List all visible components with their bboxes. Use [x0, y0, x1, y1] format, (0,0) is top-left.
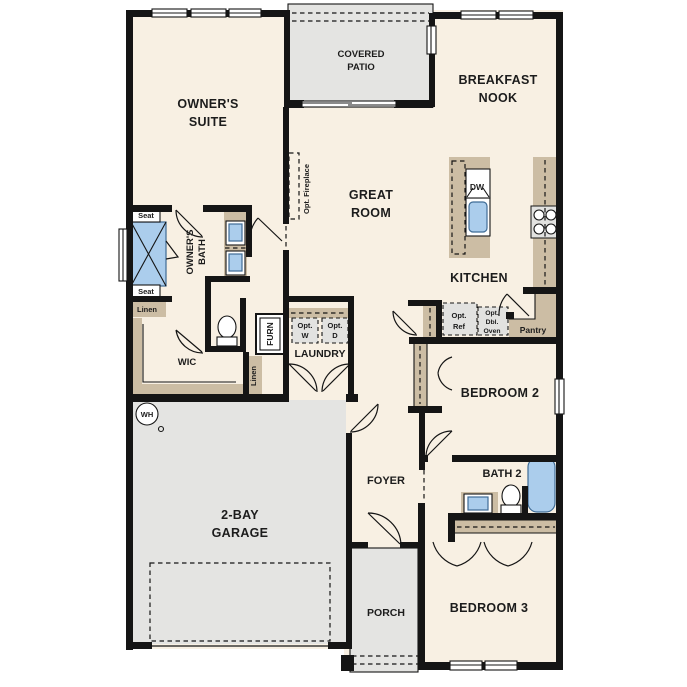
svg-text:ROOM: ROOM: [351, 206, 391, 220]
floor-plan: OWNER'S SUITE COVERED PATIO BREAKFAST NO…: [0, 0, 687, 687]
bath2-toilet: [502, 485, 520, 507]
label-great-room: GREAT: [349, 188, 393, 202]
window: [427, 26, 436, 54]
label-kitchen: KITCHEN: [450, 271, 508, 285]
svg-text:PATIO: PATIO: [347, 62, 375, 73]
label-opt-ref: Opt.: [452, 311, 467, 320]
garage-area: [132, 400, 346, 644]
window: [119, 229, 127, 281]
bath2-sink: [468, 497, 488, 510]
label-dishwasher: DW: [470, 182, 485, 192]
owners-sink-1: [229, 224, 242, 241]
label-pantry: Pantry: [520, 325, 547, 335]
window: [191, 9, 226, 17]
svg-text:Dbl.: Dbl.: [486, 319, 499, 326]
svg-text:Ref: Ref: [453, 322, 466, 331]
bath2-tub: [528, 458, 555, 512]
label-porch: PORCH: [367, 607, 405, 619]
label-linen-closet: Linen: [249, 366, 258, 386]
window: [461, 11, 496, 19]
label-covered-patio: COVERED: [338, 49, 385, 60]
window: [152, 9, 187, 17]
window: [485, 661, 517, 670]
window: [499, 11, 533, 19]
label-breakfast-nook: BREAKFAST: [458, 73, 537, 87]
owners-toilet: [218, 316, 236, 338]
svg-text:SUITE: SUITE: [189, 115, 227, 129]
owners-sink-2: [229, 254, 242, 271]
label-seat-bottom: Seat: [138, 287, 154, 296]
label-bedroom3: BEDROOM 3: [450, 601, 528, 615]
label-bedroom2: BEDROOM 2: [461, 386, 539, 400]
svg-text:D: D: [332, 331, 338, 340]
window: [450, 661, 482, 670]
label-foyer: FOYER: [367, 475, 405, 487]
label-wic: WIC: [178, 357, 197, 368]
label-opt-dryer: Opt.: [328, 321, 343, 330]
label-bath2: BATH 2: [483, 468, 522, 480]
label-laundry: LAUNDRY: [295, 348, 346, 360]
window: [229, 9, 261, 17]
svg-text:W: W: [301, 331, 309, 340]
label-opt-dbl-oven: Opt.: [485, 310, 499, 317]
label-opt-fireplace: Opt. Fireplace: [302, 164, 311, 214]
svg-text:NOOK: NOOK: [479, 91, 518, 105]
island-sink: [469, 202, 487, 232]
label-seat-top: Seat: [138, 211, 154, 220]
label-furnace: FURN: [265, 322, 275, 346]
label-linen-hall: Linen: [137, 305, 157, 314]
svg-text:Oven: Oven: [484, 328, 501, 335]
label-water-heater: WH: [141, 410, 154, 419]
label-opt-washer: Opt.: [298, 321, 313, 330]
svg-text:OWNER'S: OWNER'S: [185, 229, 196, 274]
label-garage: 2-BAY: [221, 508, 259, 522]
window: [555, 379, 564, 414]
svg-text:GARAGE: GARAGE: [212, 526, 269, 540]
floor-plan-canvas: OWNER'S SUITE COVERED PATIO BREAKFAST NO…: [0, 0, 687, 687]
svg-text:BATH: BATH: [197, 239, 208, 265]
label-owners-suite: OWNER'S: [177, 97, 238, 111]
sliding-patio-door: [302, 101, 396, 107]
